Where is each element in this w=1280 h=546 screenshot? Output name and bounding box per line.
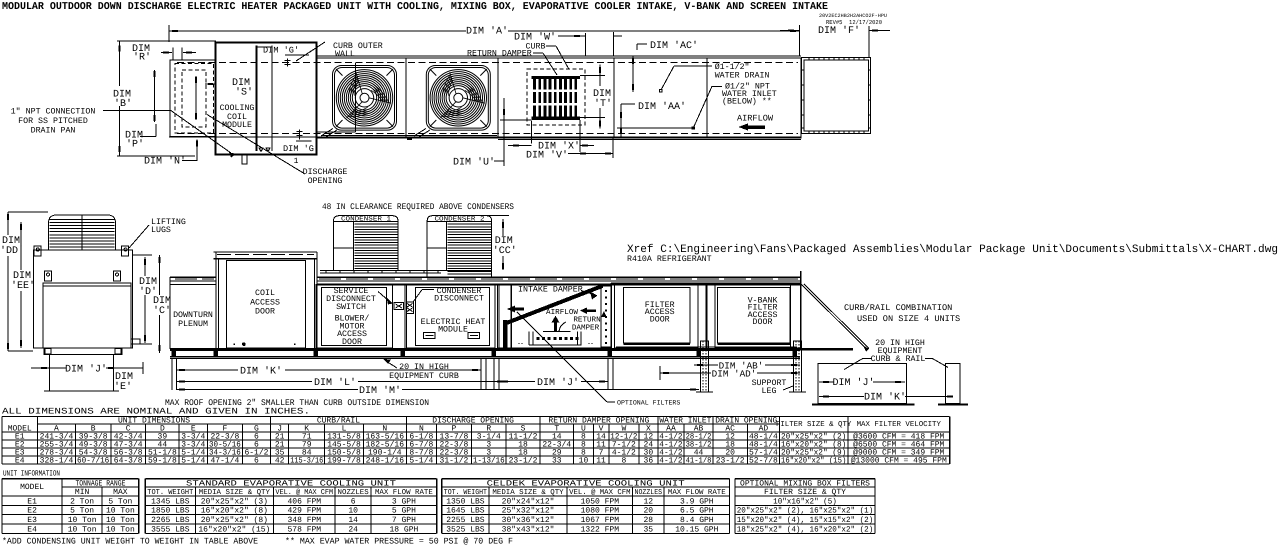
svg-text:59-1/8: 59-1/8 bbox=[148, 457, 177, 466]
svg-text:23-1/2: 23-1/2 bbox=[716, 457, 745, 466]
svg-text:DIM 'U': DIM 'U' bbox=[453, 157, 495, 169]
svg-text:DIM 'J': DIM 'J' bbox=[832, 377, 874, 389]
svg-text:TOT. WEIGHT: TOT. WEIGHT bbox=[444, 489, 488, 497]
svg-text:10: 10 bbox=[579, 457, 589, 466]
svg-text:WALL: WALL bbox=[335, 50, 355, 59]
svg-text:OPENING: OPENING bbox=[308, 177, 343, 186]
svg-text:SWITCH: SWITCH bbox=[336, 303, 366, 312]
svg-text:1-13/16: 1-13/16 bbox=[473, 457, 505, 466]
svg-text:'CC': 'CC' bbox=[493, 245, 517, 257]
svg-text:*ADD CONDENSING UNIT WEIGHT TO: *ADD CONDENSING UNIT WEIGHT TO WEIGHT IN… bbox=[2, 537, 258, 546]
svg-text:16"x20"x2" (8): 16"x20"x2" (8) bbox=[201, 507, 268, 516]
svg-text:ACCESS: ACCESS bbox=[250, 298, 280, 307]
svg-text:7 GPH: 7 GPH bbox=[392, 516, 416, 525]
svg-text:DIM 'N': DIM 'N' bbox=[144, 156, 186, 168]
svg-text:10: 10 bbox=[348, 507, 358, 516]
svg-text:USED ON SIZE 4 UNITS: USED ON SIZE 4 UNITS bbox=[857, 314, 960, 324]
svg-text:DIM 'AC': DIM 'AC' bbox=[650, 40, 698, 52]
svg-text:578 FPM: 578 FPM bbox=[287, 526, 321, 535]
svg-text:48 IN CLEARANCE REQUIRED ABOVE: 48 IN CLEARANCE REQUIRED ABOVE CONDENSER… bbox=[322, 202, 514, 212]
svg-text:8.4 GPH: 8.4 GPH bbox=[680, 516, 714, 525]
svg-text:6: 6 bbox=[351, 497, 356, 506]
svg-text:RETURN: RETURN bbox=[573, 317, 600, 325]
svg-text:406 FPM: 406 FPM bbox=[287, 497, 321, 506]
svg-text:3555 LBS: 3555 LBS bbox=[151, 526, 190, 535]
svg-text:OPTIONAL FILTERS: OPTIONAL FILTERS bbox=[617, 400, 680, 407]
svg-text:NOZZLES: NOZZLES bbox=[635, 489, 663, 497]
svg-text:DAMPER: DAMPER bbox=[572, 324, 600, 332]
svg-text:MAX FLOW RATE: MAX FLOW RATE bbox=[375, 489, 433, 497]
svg-text:DISCHARGE: DISCHARGE bbox=[303, 168, 348, 177]
svg-text:5 GPH: 5 GPH bbox=[392, 507, 416, 516]
svg-text:64-3/8: 64-3/8 bbox=[114, 457, 143, 466]
svg-text:'B': 'B' bbox=[114, 98, 132, 110]
svg-text:429 FPM: 429 FPM bbox=[287, 507, 321, 516]
svg-text:DIM 'G': DIM 'G' bbox=[283, 144, 319, 154]
svg-text:DIM 'L': DIM 'L' bbox=[314, 377, 356, 389]
svg-text:2 Ton: 2 Ton bbox=[70, 497, 94, 506]
svg-text:'T': 'T' bbox=[594, 98, 612, 110]
svg-text:1350 LBS: 1350 LBS bbox=[446, 497, 485, 506]
svg-text:REV#5 12/17/2020: REV#5 12/17/2020 bbox=[826, 19, 882, 26]
svg-text:CONDENSER 2: CONDENSER 2 bbox=[435, 216, 485, 223]
svg-text:DISCHARGE OPENING: DISCHARGE OPENING bbox=[432, 417, 514, 426]
svg-text:16"x20"x2" (15): 16"x20"x2" (15) bbox=[781, 457, 846, 466]
svg-text:20: 20 bbox=[643, 507, 653, 516]
svg-text:348 FPM: 348 FPM bbox=[287, 516, 321, 525]
svg-text:328-1/4: 328-1/4 bbox=[40, 457, 74, 466]
svg-text:CURB/RAIL COMBINATION: CURB/RAIL COMBINATION bbox=[844, 303, 952, 313]
svg-text:VEL. @ MAX CFM: VEL. @ MAX CFM bbox=[275, 488, 333, 497]
svg-text:35: 35 bbox=[643, 526, 653, 535]
svg-text:5 Ton: 5 Ton bbox=[108, 497, 132, 506]
svg-text:LUGS: LUGS bbox=[151, 226, 171, 235]
svg-text:10 Ton: 10 Ton bbox=[106, 516, 135, 525]
svg-text:'R': 'R' bbox=[133, 52, 151, 64]
svg-text:MODULE: MODULE bbox=[222, 121, 252, 130]
svg-text:FILTER SIZE & QTY: FILTER SIZE & QTY bbox=[776, 421, 852, 429]
svg-text:60-7/16: 60-7/16 bbox=[77, 457, 109, 466]
svg-text:25"x32"x12": 25"x32"x12" bbox=[502, 507, 555, 516]
svg-text:15"x20"x2" (4), 15"x15"x2" (2): 15"x20"x2" (4), 15"x15"x2" (2) bbox=[737, 516, 874, 525]
svg-text:DOOR: DOOR bbox=[342, 338, 362, 347]
svg-text:MAX FLOW RATE: MAX FLOW RATE bbox=[668, 489, 726, 497]
svg-text:EQUIPMENT CURB: EQUIPMENT CURB bbox=[389, 372, 459, 381]
svg-text:1345 LBS: 1345 LBS bbox=[151, 497, 190, 506]
svg-text:PLENUM: PLENUM bbox=[178, 320, 208, 329]
svg-text:248-1/16: 248-1/16 bbox=[366, 457, 405, 466]
svg-text:(BELOW) **: (BELOW) ** bbox=[722, 97, 772, 107]
svg-text:E4: E4 bbox=[15, 457, 25, 466]
svg-text:5 Ton: 5 Ton bbox=[70, 507, 94, 516]
svg-text:DIM 'K': DIM 'K' bbox=[240, 366, 282, 378]
svg-text:3 GPH: 3 GPH bbox=[392, 497, 416, 506]
svg-text:3.9 GPH: 3.9 GPH bbox=[680, 497, 714, 506]
svg-text:4-1/2: 4-1/2 bbox=[659, 457, 682, 466]
svg-text:R410A REFRIGERANT: R410A REFRIGERANT bbox=[627, 255, 712, 264]
svg-text:COIL: COIL bbox=[255, 289, 275, 298]
svg-text:14: 14 bbox=[348, 516, 358, 525]
svg-text:FILTER SIZE & QTY: FILTER SIZE & QTY bbox=[764, 488, 846, 497]
svg-text:2265 LBS: 2265 LBS bbox=[151, 516, 190, 525]
svg-text:10"x16"x2" (5): 10"x16"x2" (5) bbox=[773, 497, 837, 506]
svg-text:3525 LBS: 3525 LBS bbox=[446, 526, 485, 535]
svg-text:36: 36 bbox=[644, 457, 654, 466]
svg-text:Xref C:\Engineering\Fans\Packa: Xref C:\Engineering\Fans\Packaged Assemb… bbox=[627, 243, 1278, 256]
svg-text:20"x25"x2" (3): 20"x25"x2" (3) bbox=[201, 497, 268, 506]
svg-text:11: 11 bbox=[596, 457, 606, 466]
svg-text:115-3/16: 115-3/16 bbox=[290, 457, 323, 466]
svg-text:12: 12 bbox=[643, 497, 653, 506]
svg-text:1050 FPM: 1050 FPM bbox=[581, 497, 620, 506]
svg-text:DIM 'A': DIM 'A' bbox=[466, 26, 508, 38]
svg-text:MODULAR OUTDOOR DOWN DISCHARGE: MODULAR OUTDOOR DOWN DISCHARGE ELECTRIC … bbox=[2, 1, 828, 13]
svg-text:47-1/4: 47-1/4 bbox=[210, 457, 239, 466]
svg-text:1" NPT CONNECTION: 1" NPT CONNECTION bbox=[11, 107, 96, 117]
svg-text:DIM 'K': DIM 'K' bbox=[864, 392, 906, 404]
svg-text:ALL DIMENSIONS ARE NOMINAL AND: ALL DIMENSIONS ARE NOMINAL AND GIVEN IN … bbox=[2, 407, 310, 417]
svg-text:'E': 'E' bbox=[114, 381, 132, 393]
svg-text:VEL. @ MAX CFM: VEL. @ MAX CFM bbox=[569, 488, 630, 497]
svg-text:CURB & RAIL: CURB & RAIL bbox=[871, 355, 926, 364]
svg-text:16"x20"x2" (15): 16"x20"x2" (15) bbox=[198, 526, 270, 535]
svg-text:MAX FILTER VELOCITY: MAX FILTER VELOCITY bbox=[857, 421, 942, 429]
svg-text:2255 LBS: 2255 LBS bbox=[446, 516, 485, 525]
svg-text:DOWNTURN: DOWNTURN bbox=[173, 311, 213, 320]
svg-text:1322 FPM: 1322 FPM bbox=[581, 526, 620, 535]
svg-text:'P': 'P' bbox=[126, 139, 144, 151]
svg-text:DOOR: DOOR bbox=[255, 308, 275, 317]
svg-text:MODULE: MODULE bbox=[438, 326, 468, 335]
svg-text:DIM 'M': DIM 'M' bbox=[359, 385, 401, 397]
svg-text:NOZZLES: NOZZLES bbox=[338, 489, 370, 497]
svg-text:42: 42 bbox=[275, 457, 285, 466]
svg-text:1: 1 bbox=[294, 157, 299, 166]
svg-text:FOR SS PITCHED: FOR SS PITCHED bbox=[18, 117, 88, 126]
svg-text:8: 8 bbox=[621, 457, 626, 466]
svg-text:DIM 'F': DIM 'F' bbox=[818, 25, 860, 37]
svg-text:'EE': 'EE' bbox=[11, 280, 35, 292]
svg-text:E3: E3 bbox=[27, 516, 37, 525]
svg-text:RETURN DAMPER: RETURN DAMPER bbox=[467, 50, 532, 59]
svg-text:UNIT INFORMATION: UNIT INFORMATION bbox=[3, 470, 60, 479]
svg-text:DIM 'AA': DIM 'AA' bbox=[638, 101, 686, 113]
svg-text:1080 FPM: 1080 FPM bbox=[581, 507, 620, 516]
svg-text:5-1/4: 5-1/4 bbox=[181, 457, 205, 466]
svg-text:20"x25"x2" (2), 16"x25"x2" (1): 20"x25"x2" (2), 16"x25"x2" (1) bbox=[737, 507, 874, 516]
svg-text:DISCONNECT: DISCONNECT bbox=[434, 295, 484, 304]
svg-text:1850 LBS: 1850 LBS bbox=[151, 507, 190, 516]
svg-text:'C': 'C' bbox=[153, 305, 171, 317]
svg-text:10 Ton: 10 Ton bbox=[106, 507, 135, 516]
svg-text:'S': 'S' bbox=[235, 87, 253, 99]
svg-text:20"x24"x12": 20"x24"x12" bbox=[502, 497, 555, 506]
svg-text:20 IN HIGH: 20 IN HIGH bbox=[399, 363, 449, 372]
svg-text:1067 FPM: 1067 FPM bbox=[581, 516, 620, 525]
svg-text:10 Ton: 10 Ton bbox=[68, 526, 97, 535]
svg-text:AIRFLOW: AIRFLOW bbox=[737, 114, 774, 124]
svg-text:STANDARD EVAPORATIVE COOLING U: STANDARD EVAPORATIVE COOLING UNIT bbox=[186, 480, 396, 489]
svg-text:COOLING: COOLING bbox=[220, 104, 255, 113]
svg-text:23-1/2: 23-1/2 bbox=[509, 457, 538, 466]
svg-text:MEDIA SIZE & QTY: MEDIA SIZE & QTY bbox=[492, 489, 564, 497]
svg-text:18 GPH: 18 GPH bbox=[389, 526, 418, 535]
svg-text:31-1/2: 31-1/2 bbox=[440, 457, 469, 466]
svg-text:52-7/8: 52-7/8 bbox=[749, 457, 778, 466]
svg-text:1645 LBS: 1645 LBS bbox=[446, 507, 485, 516]
svg-text:DIM 'AD': DIM 'AD' bbox=[712, 369, 757, 380]
svg-text:Ø1-1/2": Ø1-1/2" bbox=[715, 62, 750, 72]
svg-text:30"x36"x12": 30"x36"x12" bbox=[502, 516, 555, 525]
svg-text:10 Ton: 10 Ton bbox=[68, 516, 97, 525]
svg-text:18"x25"x2" (4), 16"x20"x2" (2): 18"x25"x2" (4), 16"x20"x2" (2) bbox=[737, 526, 874, 535]
svg-text:41-1/8: 41-1/8 bbox=[686, 457, 712, 466]
svg-text:@13000 CFM = 495 FPM: @13000 CFM = 495 FPM bbox=[851, 457, 947, 466]
svg-text:DOOR: DOOR bbox=[753, 318, 773, 327]
svg-text:E4: E4 bbox=[27, 526, 37, 535]
svg-text:28: 28 bbox=[643, 516, 653, 525]
svg-text:6: 6 bbox=[254, 457, 259, 466]
svg-text:DRAIN PAN: DRAIN PAN bbox=[31, 127, 76, 136]
svg-text:20"x25"x2" (8): 20"x25"x2" (8) bbox=[201, 516, 268, 525]
svg-text:DIM 'J': DIM 'J' bbox=[537, 377, 579, 389]
svg-text:INTAKE DAMPER: INTAKE DAMPER bbox=[518, 285, 583, 294]
svg-text:MEDIA SIZE & QTY: MEDIA SIZE & QTY bbox=[199, 489, 271, 497]
svg-text:TOT. WEIGHT: TOT. WEIGHT bbox=[147, 489, 194, 497]
svg-text:MAX: MAX bbox=[113, 488, 128, 497]
svg-text:38"x43"x12": 38"x43"x12" bbox=[502, 526, 555, 535]
svg-text:CURB/RAIL: CURB/RAIL bbox=[317, 417, 360, 426]
svg-text:6.5 GPH: 6.5 GPH bbox=[680, 507, 714, 516]
svg-text:DIM 'V': DIM 'V' bbox=[526, 150, 568, 162]
svg-text:199-7/8: 199-7/8 bbox=[327, 457, 361, 466]
svg-text:DIM 'J': DIM 'J' bbox=[65, 364, 107, 376]
svg-text:E2: E2 bbox=[27, 507, 37, 516]
svg-text:24: 24 bbox=[348, 526, 358, 535]
svg-text:** MAX EVAP WATER PRESSURE = 5: ** MAX EVAP WATER PRESSURE = 50 PSI @ 70… bbox=[285, 537, 513, 546]
svg-text:WATER DRAIN: WATER DRAIN bbox=[715, 72, 770, 81]
svg-text:LEG: LEG bbox=[762, 387, 777, 396]
svg-text:10.15 GPH: 10.15 GPH bbox=[675, 526, 718, 535]
svg-text:10 Ton: 10 Ton bbox=[106, 526, 135, 535]
svg-text:33: 33 bbox=[552, 457, 562, 466]
svg-text:DOOR: DOOR bbox=[650, 315, 670, 324]
svg-text:5-1/4: 5-1/4 bbox=[409, 457, 433, 466]
svg-text:MODEL: MODEL bbox=[20, 483, 44, 492]
svg-text:MIN: MIN bbox=[75, 488, 90, 497]
svg-text:'DD': 'DD' bbox=[0, 245, 24, 257]
svg-text:CONDENSER 1: CONDENSER 1 bbox=[341, 216, 391, 223]
svg-text:CELDEK EVAPORATIVE COOLING UNI: CELDEK EVAPORATIVE COOLING UNIT bbox=[487, 480, 685, 489]
svg-text:E1: E1 bbox=[27, 497, 37, 506]
svg-text:DIM 'G': DIM 'G' bbox=[263, 46, 299, 56]
